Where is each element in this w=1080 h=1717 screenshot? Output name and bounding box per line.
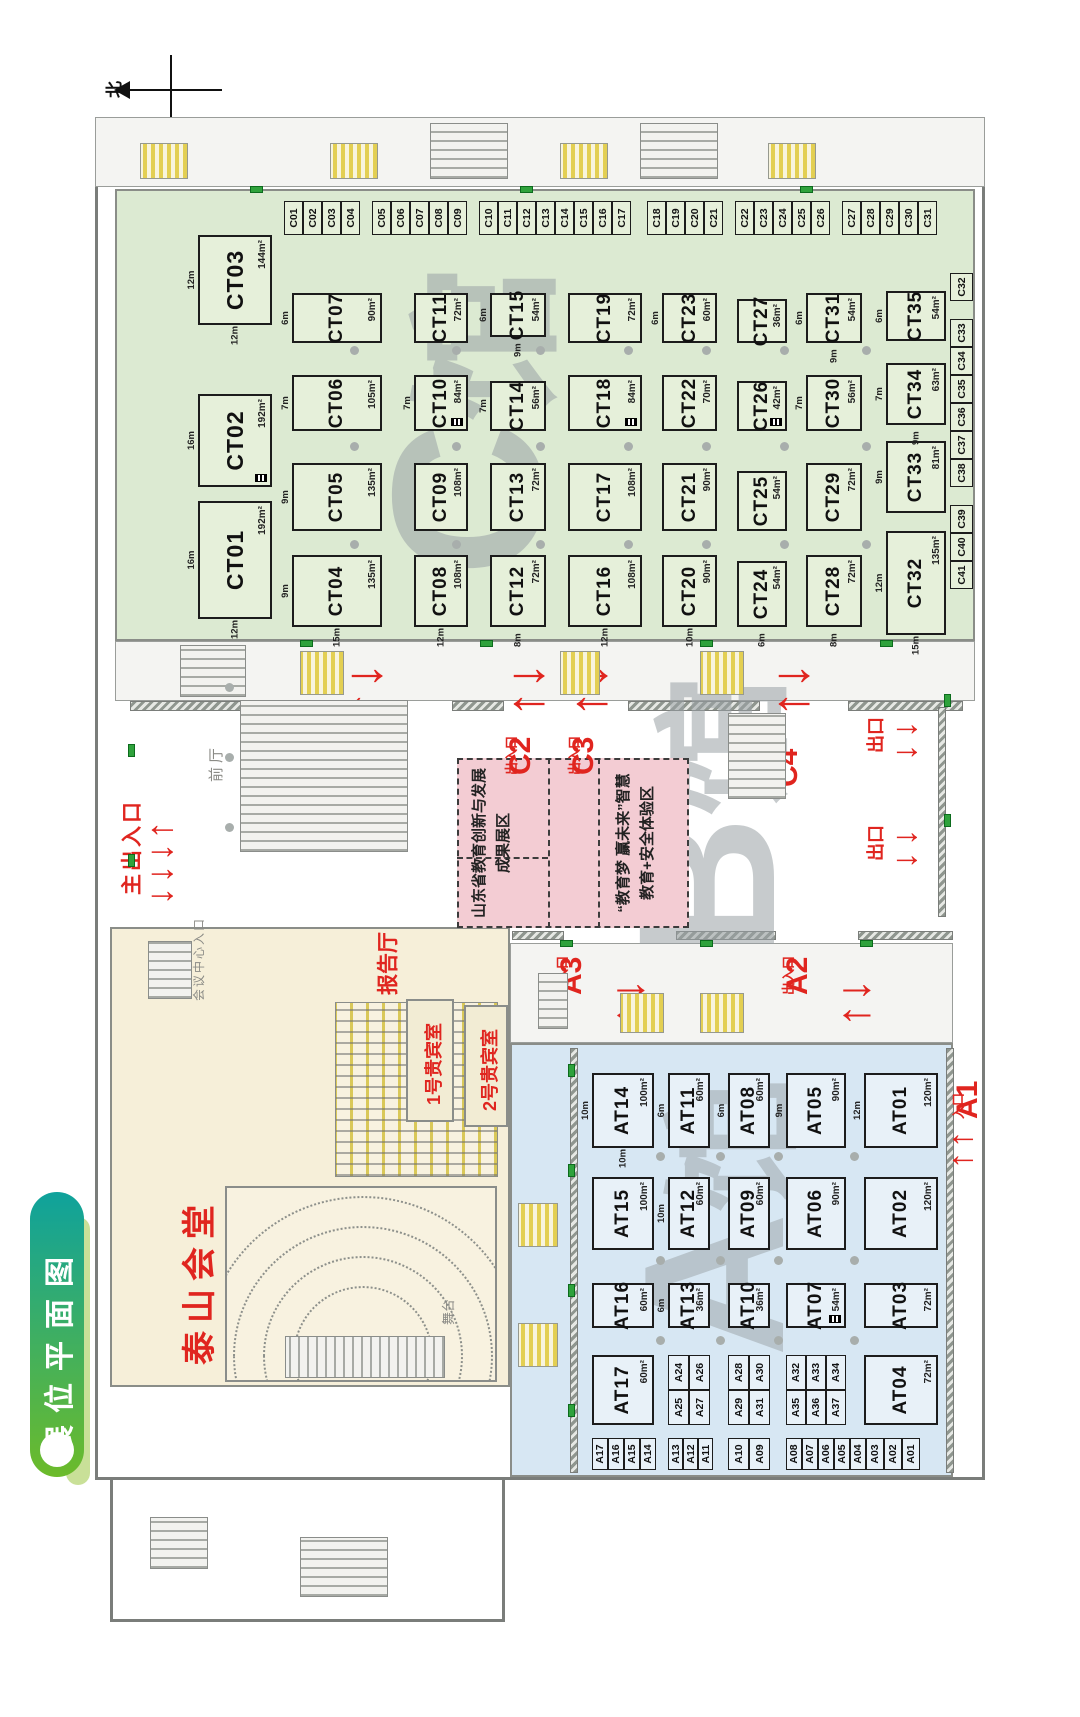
booth-CT11: CT1172m²	[414, 293, 468, 343]
booth-AT10: AT1036m²	[728, 1283, 770, 1328]
booth-A07: A07	[802, 1438, 818, 1470]
booth-dim: 9m	[874, 470, 885, 484]
booth-C02: C02	[303, 201, 322, 235]
booth-AT01: AT01120m²12m	[864, 1073, 938, 1148]
stairs-block	[728, 713, 786, 799]
booth-CT06: CT06105m²7m	[292, 375, 382, 431]
booth-id: CT32	[905, 558, 927, 608]
stairs-block	[150, 1517, 208, 1569]
booth-C04: C04	[341, 201, 360, 235]
booth-A28: A28	[728, 1355, 749, 1390]
booth-dim: 12m	[186, 270, 197, 289]
booth-A26: A26	[689, 1355, 710, 1390]
column-dot	[452, 442, 461, 451]
booth-id: CT33	[905, 452, 927, 502]
column-dot	[702, 540, 711, 549]
booth-C30: C30	[899, 201, 918, 235]
booth-dim: 10m	[580, 1101, 591, 1120]
booth-id: CT13	[507, 472, 529, 522]
column-dot	[536, 346, 545, 355]
door-marker	[128, 854, 135, 867]
booth-A32: A32	[786, 1355, 806, 1390]
stairs-block	[148, 941, 192, 999]
booth-area: 72m²	[531, 468, 542, 491]
column-dot	[862, 540, 871, 549]
door-marker	[568, 1404, 575, 1417]
booth-A31: A31	[749, 1390, 770, 1425]
booth-area: 84m²	[627, 380, 638, 403]
column-dot	[225, 753, 234, 762]
booth-id: CT35	[905, 291, 927, 341]
column-dot	[774, 1256, 783, 1265]
booth-area: 56m²	[531, 386, 542, 409]
booth-id: CT31	[823, 293, 845, 343]
booth-dim: 6m	[874, 309, 885, 323]
booth-id: CT16	[594, 566, 616, 616]
column-dot	[716, 1256, 725, 1265]
booth-area: 36m²	[772, 304, 783, 327]
booth-A35: A35	[786, 1390, 806, 1425]
booth-area: 60m²	[755, 1182, 766, 1205]
booth-A09: A09	[749, 1438, 770, 1470]
booth-dim: 6m	[478, 308, 489, 322]
door-marker	[560, 940, 573, 947]
booth-dim: 6m	[656, 1104, 667, 1118]
booth-area: 72m²	[923, 1288, 934, 1311]
booth-id: CT07	[326, 293, 348, 343]
booth-area: 36m²	[695, 1288, 706, 1311]
booth-AT08: AT0860m²6m	[728, 1073, 770, 1148]
booth-C35: C35	[950, 375, 973, 403]
booth-area: 135m²	[931, 536, 942, 565]
booth-C11: C11	[498, 201, 517, 235]
booth-dim: 7m	[794, 396, 805, 410]
booth-A34: A34	[826, 1355, 846, 1390]
booth-C28: C28	[861, 201, 880, 235]
booth-C31: C31	[918, 201, 937, 235]
column-dot	[350, 442, 359, 451]
column-dot	[225, 823, 234, 832]
stairs-block	[180, 645, 246, 697]
door-marker	[700, 940, 713, 947]
booth-A02: A02	[884, 1438, 902, 1470]
column-dot	[656, 1256, 665, 1265]
booth-AT17: AT1760m²	[592, 1355, 654, 1425]
booth-C17: C17	[612, 201, 631, 235]
door-marker	[480, 640, 493, 647]
booth-area: 60m²	[639, 1360, 650, 1383]
booth-C24: C24	[773, 201, 792, 235]
booth-id: CT06	[326, 378, 348, 428]
booth-id: CT02	[222, 410, 249, 470]
column-dot	[536, 442, 545, 451]
column-dot	[452, 346, 461, 355]
booth-AT11: AT1160m²6m	[668, 1073, 710, 1148]
booth-CT16: CT16108m²12m	[568, 555, 642, 627]
booth-C14: C14	[555, 201, 574, 235]
booth-id: CT11	[430, 293, 452, 342]
booth-CT09: CT09108m²	[414, 463, 468, 531]
booth-A08: A08	[786, 1438, 802, 1470]
column-dot	[774, 1336, 783, 1345]
seating-fixture	[518, 1323, 558, 1367]
door-marker	[568, 1064, 575, 1077]
booth-id: CT24	[751, 569, 773, 619]
booth-C38: C38	[950, 459, 973, 487]
booth-C25: C25	[792, 201, 811, 235]
booth-area: 105m²	[367, 380, 378, 409]
booth-dim: 6m	[656, 1299, 667, 1313]
booth-CT33: CT3381m²9m	[886, 441, 946, 513]
column-dot	[624, 540, 633, 549]
booth-id: CT10	[430, 378, 452, 428]
booth-id: AT04	[890, 1365, 912, 1414]
booth-A24: A24	[668, 1355, 689, 1390]
seating-fixture	[518, 1203, 558, 1247]
booth-A37: A37	[826, 1390, 846, 1425]
door-marker	[944, 694, 951, 707]
seating-fixture	[700, 651, 744, 695]
booth-area: 90m²	[367, 298, 378, 321]
booth-A10: A10	[728, 1438, 749, 1470]
booth-CT07: CT0790m²6m	[292, 293, 382, 343]
booth-dim: 9m	[829, 349, 840, 363]
booth-area: 144m²	[257, 240, 268, 269]
booth-CT25: CT2554m²	[737, 471, 787, 531]
booth-area: 108m²	[453, 468, 464, 497]
column-dot	[862, 346, 871, 355]
booth-C01: C01	[284, 201, 303, 235]
booth-C03: C03	[322, 201, 341, 235]
column-dot	[225, 683, 234, 692]
booth-C40: C40	[950, 533, 973, 561]
door-marker	[300, 640, 313, 647]
booth-area: 54m²	[772, 476, 783, 499]
booth-dim: 12m	[852, 1101, 863, 1120]
booth-AT09: AT0960m²	[728, 1177, 770, 1250]
booth-AT15: AT15100m²	[592, 1177, 654, 1250]
booth-CT24: CT2454m²6m	[737, 561, 787, 627]
booth-CT35: CT3554m²6m	[886, 291, 946, 341]
booth-C29: C29	[880, 201, 899, 235]
booth-CT29: CT2972m²	[806, 463, 862, 531]
booth-area: 108m²	[627, 468, 638, 497]
booth-area: 72m²	[923, 1360, 934, 1383]
booth-C26: C26	[811, 201, 830, 235]
booth-area: 72m²	[531, 560, 542, 583]
booth-CT17: CT17108m²	[568, 463, 642, 531]
booth-id: AT05	[805, 1086, 827, 1135]
booth-id: CT21	[679, 472, 701, 522]
booth-CT23: CT2360m²6m	[662, 293, 717, 343]
booth-CT15: CT1554m²6m9m	[490, 293, 546, 337]
booth-dim: 7m	[478, 399, 489, 413]
booth-C12: C12	[517, 201, 536, 235]
booth-id: CT30	[823, 378, 845, 428]
booth-id: CT09	[430, 472, 452, 522]
booth-id: CT29	[823, 472, 845, 522]
column-dot	[774, 1152, 783, 1161]
door-marker	[520, 186, 533, 193]
door-marker	[128, 744, 135, 757]
booth-C20: C20	[685, 201, 704, 235]
booth-dim: 12m	[436, 628, 447, 647]
booth-CT02: CT02192m²16m	[198, 394, 272, 487]
booth-id: AT01	[890, 1086, 912, 1135]
booth-area: 54m²	[847, 298, 858, 321]
seating-fixture	[560, 143, 608, 179]
door-marker	[700, 640, 713, 647]
booth-AT04: AT0472m²	[864, 1355, 938, 1425]
column-dot	[862, 442, 871, 451]
booth-area: 72m²	[627, 298, 638, 321]
booth-A14: A14	[640, 1438, 656, 1470]
booth-dim: 12m	[230, 620, 241, 639]
utility-icon	[451, 418, 463, 426]
booth-area: 54m²	[772, 566, 783, 589]
column-dot	[850, 1336, 859, 1345]
booth-CT08: CT08108m²12m	[414, 555, 468, 627]
booth-dim: 6m	[794, 311, 805, 325]
booth-CT31: CT3154m²6m9m	[806, 293, 862, 343]
booth-area: 63m²	[931, 368, 942, 391]
booth-id: AT17	[612, 1365, 634, 1414]
booth-id: CT19	[594, 293, 616, 343]
booth-area: 60m²	[755, 1078, 766, 1101]
booth-dim: 12m	[600, 628, 611, 647]
booth-dim: 12m	[874, 573, 885, 592]
booth-C19: C19	[666, 201, 685, 235]
booth-id: AT15	[612, 1189, 634, 1238]
booth-area: 56m²	[847, 380, 858, 403]
booth-dim: 16m	[186, 550, 197, 569]
stairs-block	[300, 1537, 388, 1597]
column-dot	[716, 1152, 725, 1161]
booth-CT01: CT01192m²16m12m	[198, 501, 272, 619]
booth-A25: A25	[668, 1390, 689, 1425]
column-dot	[702, 346, 711, 355]
seating-fixture	[620, 993, 664, 1033]
column-dot	[780, 346, 789, 355]
booth-dim: 16m	[186, 431, 197, 450]
booth-CT04: CT04135m²9m15m	[292, 555, 382, 627]
booth-CT10: CT1084m²7m	[414, 375, 468, 431]
column-dot	[780, 540, 789, 549]
booth-C16: C16	[593, 201, 612, 235]
booth-CT14: CT1456m²7m	[490, 381, 546, 431]
booth-id: CT20	[679, 566, 701, 616]
booth-area: 72m²	[453, 298, 464, 321]
stairs-block	[240, 700, 408, 852]
booth-area: 72m²	[847, 560, 858, 583]
booth-id: CT17	[594, 472, 616, 522]
booth-CT21: CT2190m²	[662, 463, 717, 531]
booth-A15: A15	[624, 1438, 640, 1470]
booth-C34: C34	[950, 347, 973, 375]
booth-C27: C27	[842, 201, 861, 235]
utility-icon	[829, 1315, 841, 1323]
booth-area: 100m²	[639, 1078, 650, 1107]
booth-dim: 15m	[911, 636, 922, 655]
seating-fixture	[330, 143, 378, 179]
booth-A33: A33	[806, 1355, 826, 1390]
booth-dim: 9m	[911, 431, 922, 445]
booth-dim: 12m	[230, 326, 241, 345]
booth-C06: C06	[391, 201, 410, 235]
booth-A27: A27	[689, 1390, 710, 1425]
door-marker	[568, 1284, 575, 1297]
booth-area: 135m²	[367, 560, 378, 589]
booth-CT19: CT1972m²	[568, 293, 642, 343]
booth-CT05: CT05135m²9m	[292, 463, 382, 531]
column-dot	[350, 346, 359, 355]
seating-fixture	[768, 143, 816, 179]
column-dot	[716, 1336, 725, 1345]
booth-CT32: CT32135m²12m15m	[886, 531, 946, 635]
booth-area: 90m²	[831, 1078, 842, 1101]
booth-dim: 7m	[874, 387, 885, 401]
door-marker	[568, 1164, 575, 1177]
booth-area: 60m²	[695, 1078, 706, 1101]
booth-area: 90m²	[831, 1182, 842, 1205]
booth-id: CT18	[594, 378, 616, 428]
booth-C39: C39	[950, 505, 973, 533]
booth-id: AT07	[805, 1281, 827, 1330]
stairs-block	[430, 123, 508, 179]
booth-A17: A17	[592, 1438, 608, 1470]
booth-id: CT27	[751, 296, 773, 346]
booth-AT05: AT0590m²9m	[786, 1073, 846, 1148]
booth-A29: A29	[728, 1390, 749, 1425]
booth-AT02: AT02120m²	[864, 1177, 938, 1250]
booth-id: AT02	[890, 1189, 912, 1238]
booth-A03: A03	[866, 1438, 884, 1470]
booth-CT03: CT03144m²12m12m	[198, 235, 272, 325]
column-dot	[452, 540, 461, 549]
column-dot	[656, 1336, 665, 1345]
booth-area: 54m²	[931, 296, 942, 319]
booth-id: AT03	[890, 1281, 912, 1330]
booth-C36: C36	[950, 403, 973, 431]
booth-A30: A30	[749, 1355, 770, 1390]
booth-AT14: AT14100m²10m10m	[592, 1073, 654, 1148]
booth-C18: C18	[647, 201, 666, 235]
booth-C08: C08	[429, 201, 448, 235]
booth-id: CT01	[222, 530, 249, 590]
booth-area: 100m²	[639, 1182, 650, 1211]
door-marker	[860, 940, 873, 947]
booth-C37: C37	[950, 431, 973, 459]
booth-C13: C13	[536, 201, 555, 235]
door-marker	[944, 814, 951, 827]
booth-A04: A04	[850, 1438, 866, 1470]
booth-dim: 10m	[684, 628, 695, 647]
booth-dim: 6m	[650, 311, 661, 325]
booth-dim: 9m	[513, 343, 524, 357]
booth-dim: 6m	[757, 633, 768, 647]
booth-AT06: AT0690m²	[786, 1177, 846, 1250]
booth-id: CT28	[823, 566, 845, 616]
door-marker	[880, 640, 893, 647]
booth-area: 70m²	[702, 380, 713, 403]
booth-area: 108m²	[627, 560, 638, 589]
booth-area: 81m²	[931, 446, 942, 469]
booth-id: CT03	[222, 250, 249, 310]
booth-dim: 15m	[332, 628, 343, 647]
door-marker	[800, 186, 813, 193]
booth-CT34: CT3463m²7m9m	[886, 363, 946, 425]
floor-plan-stage: 展位平面图 北 C馆 B馆 A馆 山东省教育创新与发展	[0, 0, 1080, 1717]
column-dot	[624, 346, 633, 355]
booth-CT13: CT1372m²	[490, 463, 546, 531]
booth-CT28: CT2872m²8m	[806, 555, 862, 627]
column-dot	[536, 540, 545, 549]
booth-dim: 6m	[716, 1104, 727, 1118]
door-marker	[250, 186, 263, 193]
column-dot	[850, 1256, 859, 1265]
booth-C15: C15	[574, 201, 593, 235]
booth-id: CT05	[326, 472, 348, 522]
booth-area: 90m²	[702, 560, 713, 583]
booth-C05: C05	[372, 201, 391, 235]
booth-area: 192m²	[257, 506, 268, 535]
booth-AT13: AT1336m²6m	[668, 1283, 710, 1328]
booth-A01: A01	[902, 1438, 920, 1470]
booth-CT22: CT2270m²	[662, 375, 717, 431]
booth-AT07: AT0754m²	[786, 1283, 846, 1328]
booth-area: 90m²	[702, 468, 713, 491]
booth-A36: A36	[806, 1390, 826, 1425]
booth-dim: 10m	[618, 1149, 629, 1168]
booth-id: CT14	[507, 381, 529, 431]
booth-id: CT22	[679, 378, 701, 428]
booth-AT16: AT1660m²	[592, 1283, 654, 1328]
booth-area: 36m²	[755, 1288, 766, 1311]
utility-icon	[255, 474, 267, 482]
column-dot	[350, 540, 359, 549]
booth-CT18: CT1884m²	[568, 375, 642, 431]
booth-dim: 7m	[280, 396, 291, 410]
booth-dim: 9m	[774, 1104, 785, 1118]
column-dot	[780, 442, 789, 451]
booth-area: 120m²	[923, 1078, 934, 1107]
booth-area: 72m²	[847, 468, 858, 491]
utility-icon	[770, 418, 782, 426]
booth-C09: C09	[448, 201, 467, 235]
booth-dim: 8m	[513, 633, 524, 647]
booth-A11: A11	[698, 1438, 713, 1470]
booth-CT26: CT2642m²	[737, 381, 787, 431]
booth-A13: A13	[668, 1438, 683, 1470]
booth-AT12: AT1260m²10m	[668, 1177, 710, 1250]
seating-fixture	[300, 651, 344, 695]
booth-AT03: AT0372m²	[864, 1283, 938, 1328]
booth-C10: C10	[479, 201, 498, 235]
booth-dim: 7m	[402, 396, 413, 410]
booth-CT27: CT2736m²	[737, 299, 787, 343]
booth-layer: CT01192m²16m12mCT02192m²16mCT03144m²12m1…	[0, 0, 1080, 1717]
booth-C22: C22	[735, 201, 754, 235]
utility-icon	[625, 418, 637, 426]
booth-id: AT14	[612, 1086, 634, 1135]
booth-id: CT25	[751, 476, 773, 526]
booth-C32: C32	[950, 273, 973, 301]
booth-C41: C41	[950, 561, 973, 589]
booth-CT30: CT3056m²7m	[806, 375, 862, 431]
booth-A16: A16	[608, 1438, 624, 1470]
booth-area: 60m²	[695, 1182, 706, 1205]
booth-A05: A05	[834, 1438, 850, 1470]
